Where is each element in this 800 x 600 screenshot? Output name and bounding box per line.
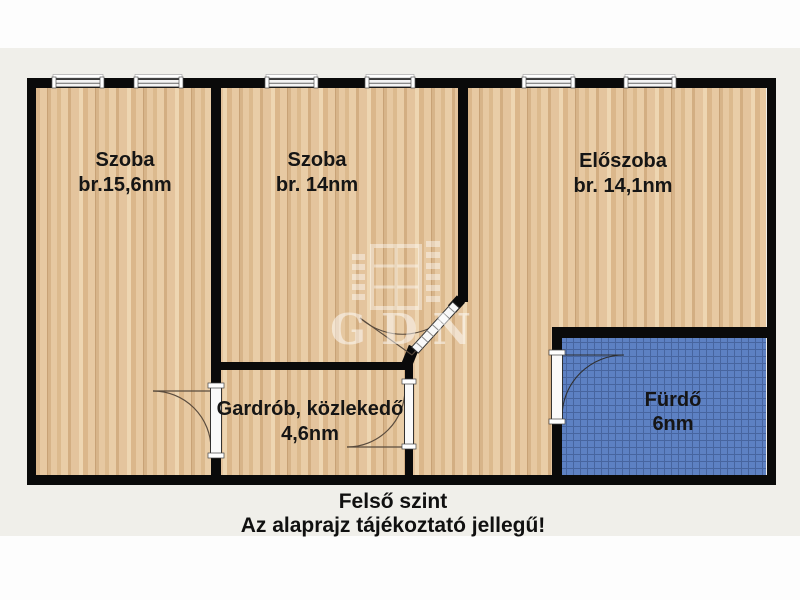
wall-outer-left xyxy=(27,88,36,475)
wall-outer-right xyxy=(767,88,776,475)
bathroom-area-label: 6nm xyxy=(652,413,693,435)
window xyxy=(624,75,676,89)
room2-name-label: Szoba xyxy=(288,149,348,171)
wall-bathroom-left-lower xyxy=(552,422,562,475)
wall-room1-room2-lower xyxy=(211,456,221,475)
floorplan-drawing: GDN Szoba br.15,6nm Szoba br. 14nm Elősz… xyxy=(0,0,800,600)
wall-gardrob-top xyxy=(211,362,413,370)
gardrob-name-label: Gardrób, közlekedő xyxy=(217,398,404,420)
room2-area-label: br. 14nm xyxy=(276,174,358,196)
wall-bathroom-top xyxy=(552,327,776,338)
wall-gardrob-right-lower xyxy=(405,447,413,475)
wall-room1-room2-upper xyxy=(211,88,221,386)
floorplan-page: GDN Szoba br.15,6nm Szoba br. 14nm Elősz… xyxy=(0,0,800,600)
bathroom-name-label: Fürdő xyxy=(645,389,702,411)
wall-outer-bottom xyxy=(27,475,776,485)
caption-disclaimer-label: Az alaprajz tájékoztató jellegű! xyxy=(241,514,546,537)
room3-name-label: Előszoba xyxy=(579,150,668,172)
room3-area-label: br. 14,1nm xyxy=(574,175,673,197)
window xyxy=(365,75,415,89)
room1-area-label: br.15,6nm xyxy=(78,174,171,196)
window xyxy=(134,75,183,89)
watermark-text: GDN xyxy=(330,305,486,354)
caption-floor-label: Felső szint xyxy=(339,490,448,513)
room1-name-label: Szoba xyxy=(96,149,156,171)
window xyxy=(522,75,575,89)
gardrob-area-label: 4,6nm xyxy=(281,423,339,445)
window xyxy=(52,75,104,89)
wall-room2-eloszoba xyxy=(458,88,468,302)
window xyxy=(265,75,318,89)
